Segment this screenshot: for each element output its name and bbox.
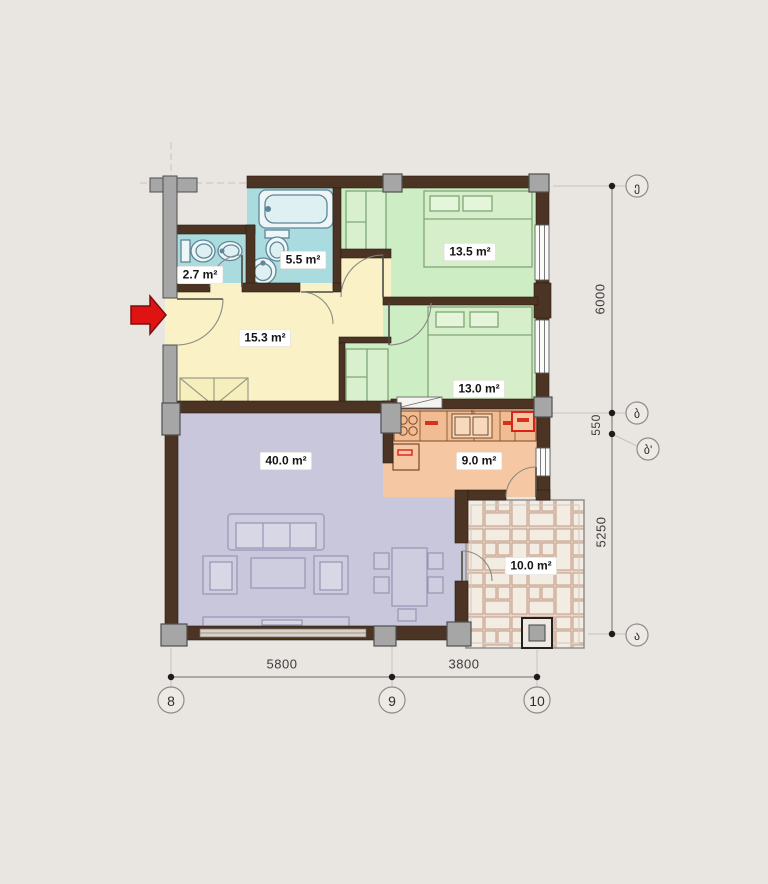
kitchen-appliance-symbol: [393, 444, 419, 470]
room-area-label-bedroom-top: 13.5 m²: [444, 244, 495, 261]
room-area-label-wc: 2.7 m²: [178, 267, 223, 284]
room-area-label-bedroom-middle: 13.0 m²: [453, 381, 504, 398]
armchair-symbol-left: [203, 556, 237, 594]
room-area-label-living: 40.0 m²: [260, 453, 311, 470]
wardrobe-symbol-middle: [346, 349, 388, 405]
floor-plan-drawing: [0, 0, 768, 884]
terrace-column: [522, 618, 552, 648]
room-area-label-terrace: 10.0 m²: [505, 558, 556, 575]
dimension-right-5250: 5250: [594, 517, 609, 548]
window-living-bottom: [200, 629, 366, 637]
wardrobe-symbol-top: [346, 191, 386, 253]
coffee-table-symbol: [251, 558, 305, 588]
sofa-symbol: [228, 514, 324, 550]
armchair-symbol-right: [314, 556, 348, 594]
window-bedroom-top: [535, 225, 549, 280]
entrance-arrow: [131, 296, 166, 334]
window-kitchen: [536, 448, 550, 476]
bathtub-symbol: [259, 190, 333, 228]
axis-marker-right-3: ბ': [644, 443, 653, 457]
axis-marker-bottom-8: 8: [167, 693, 175, 709]
axis-marker-right-4: ა: [634, 629, 640, 643]
pass-through-window: [397, 397, 442, 408]
dimension-bottom-3800: 3800: [449, 657, 480, 672]
dimension-right-6000: 6000: [593, 284, 608, 315]
dimension-bottom-5800: 5800: [267, 657, 298, 672]
toilet-symbol-wc: [181, 240, 215, 262]
dimension-right-550: 550: [589, 414, 603, 436]
kitchen-sink-symbol: [452, 410, 492, 438]
window-bedroom-middle: [535, 320, 549, 373]
axis-marker-right-1: ე: [634, 180, 640, 194]
floor-plan-page: 2.7 m² 5.5 m² 13.5 m² 15.3 m² 13.0 m² 40…: [0, 0, 768, 884]
room-area-label-hallway: 15.3 m²: [239, 330, 290, 347]
axis-marker-bottom-9: 9: [388, 693, 396, 709]
axis-marker-right-2: ბ: [634, 407, 640, 421]
room-area-label-kitchen: 9.0 m²: [457, 453, 502, 470]
axis-marker-bottom-10: 10: [529, 693, 545, 709]
room-area-label-bathroom: 5.5 m²: [281, 252, 326, 269]
fridge-symbol: [512, 412, 534, 431]
